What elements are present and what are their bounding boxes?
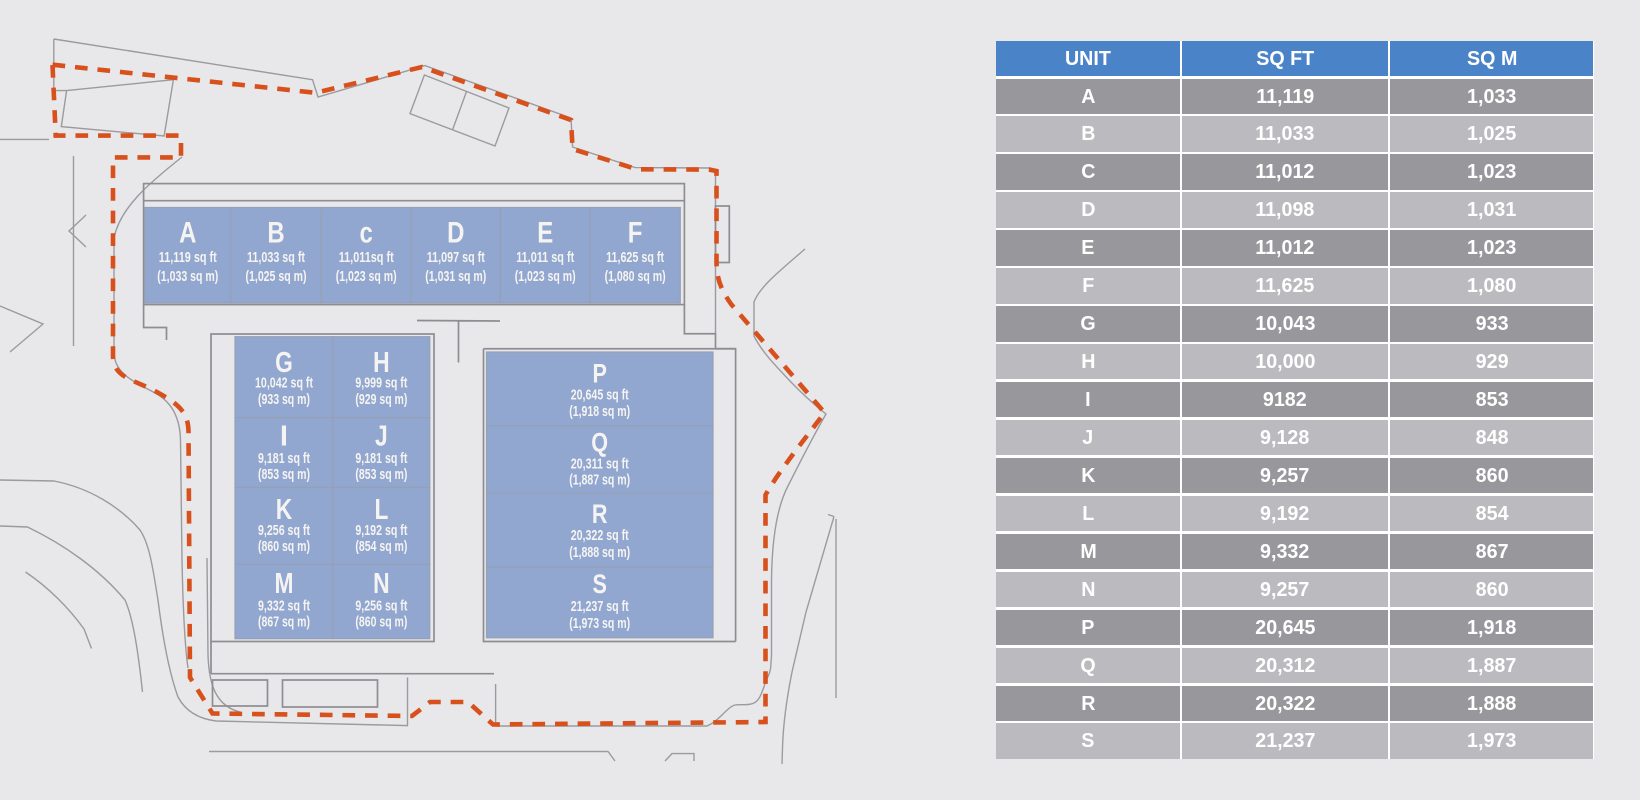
svg-text:11,011 sq ft: 11,011 sq ft	[516, 250, 574, 266]
svg-text:(1,031 sq m): (1,031 sq m)	[425, 269, 486, 285]
svg-text:c: c	[360, 217, 373, 250]
svg-text:9,256 sq ft: 9,256 sq ft	[355, 599, 407, 615]
svg-text:L: L	[374, 494, 388, 526]
svg-text:(1,023 sq m): (1,023 sq m)	[515, 269, 576, 285]
svg-text:9,181 sq ft: 9,181 sq ft	[258, 451, 310, 467]
svg-text:(1,918 sq m): (1,918 sq m)	[569, 404, 630, 420]
svg-text:(853 sq m): (853 sq m)	[258, 467, 310, 483]
svg-text:A: A	[179, 217, 196, 250]
svg-text:11,119 sq ft: 11,119 sq ft	[159, 250, 217, 266]
svg-text:(1,080 sq m): (1,080 sq m)	[605, 269, 666, 285]
svg-text:(854 sq m): (854 sq m)	[355, 539, 407, 555]
svg-text:11,097 sq ft: 11,097 sq ft	[427, 250, 485, 266]
svg-text:(929 sq m): (929 sq m)	[355, 392, 407, 408]
svg-text:9,256 sq ft: 9,256 sq ft	[258, 523, 310, 539]
svg-text:(933 sq m): (933 sq m)	[258, 392, 310, 408]
svg-text:J: J	[375, 420, 388, 452]
svg-text:9,181 sq ft: 9,181 sq ft	[355, 451, 407, 467]
svg-text:(1,887 sq m): (1,887 sq m)	[569, 472, 630, 488]
svg-text:M: M	[275, 568, 294, 600]
svg-text:G: G	[275, 347, 293, 379]
svg-text:B: B	[267, 217, 284, 250]
svg-text:20,311 sq ft: 20,311 sq ft	[571, 456, 629, 472]
svg-text:S: S	[593, 569, 607, 599]
svg-text:20,645 sq ft: 20,645 sq ft	[571, 387, 629, 403]
svg-text:9,192 sq ft: 9,192 sq ft	[355, 523, 407, 539]
svg-text:(853 sq m): (853 sq m)	[355, 467, 407, 483]
svg-text:9,999 sq ft: 9,999 sq ft	[355, 376, 407, 392]
svg-text:R: R	[592, 499, 608, 529]
svg-text:E: E	[537, 217, 553, 250]
svg-text:9,332 sq ft: 9,332 sq ft	[258, 599, 310, 615]
svg-text:(860 sq m): (860 sq m)	[355, 615, 407, 631]
svg-text:10,042 sq ft: 10,042 sq ft	[255, 376, 313, 392]
svg-text:20,322 sq ft: 20,322 sq ft	[571, 528, 629, 544]
svg-text:F: F	[628, 217, 643, 250]
svg-text:(1,888 sq m): (1,888 sq m)	[569, 545, 630, 561]
svg-text:(867 sq m): (867 sq m)	[258, 615, 310, 631]
svg-text:(1,025 sq m): (1,025 sq m)	[246, 269, 307, 285]
svg-text:I: I	[280, 420, 288, 452]
svg-text:P: P	[593, 359, 607, 389]
svg-text:(1,033 sq m): (1,033 sq m)	[157, 269, 218, 285]
svg-text:(1,973 sq m): (1,973 sq m)	[569, 616, 630, 632]
svg-text:11,625 sq ft: 11,625 sq ft	[606, 250, 664, 266]
svg-text:21,237 sq ft: 21,237 sq ft	[571, 599, 629, 615]
svg-text:D: D	[447, 217, 464, 250]
svg-text:Q: Q	[591, 428, 608, 458]
svg-text:11,033 sq ft: 11,033 sq ft	[247, 250, 305, 266]
svg-text:K: K	[276, 494, 293, 526]
svg-text:H: H	[373, 347, 390, 379]
svg-text:(860 sq m): (860 sq m)	[258, 539, 310, 555]
svg-text:(1,023 sq m): (1,023 sq m)	[336, 269, 397, 285]
svg-text:N: N	[373, 568, 390, 600]
svg-text:11,011sq ft: 11,011sq ft	[339, 250, 394, 266]
